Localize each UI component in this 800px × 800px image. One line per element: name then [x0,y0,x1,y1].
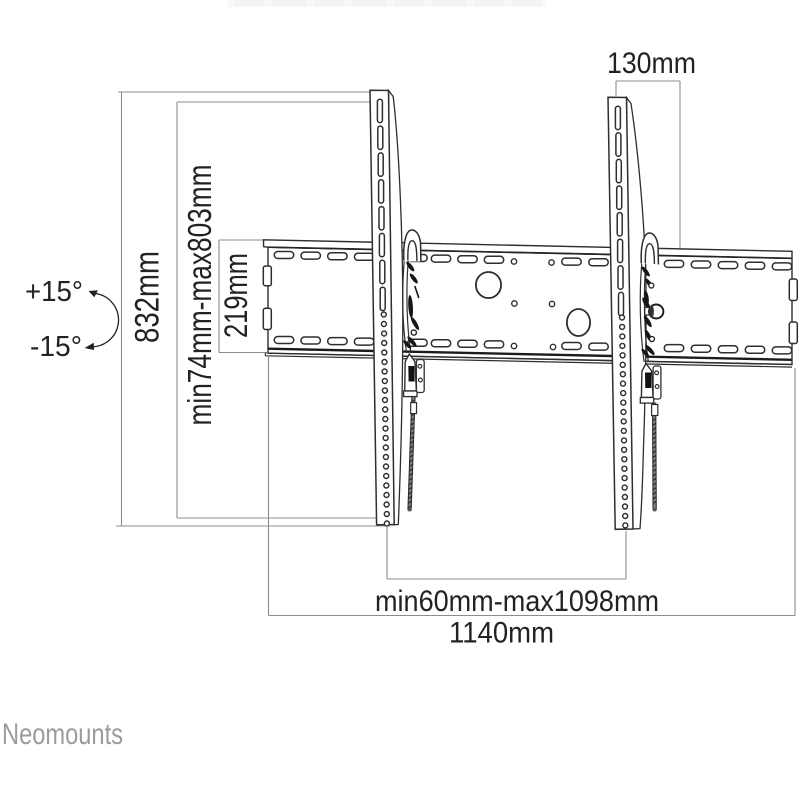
svg-text:+15°: +15° [25,276,83,308]
svg-text:219mm: 219mm [218,253,254,338]
svg-text:832mm: 832mm [129,251,167,343]
svg-text:1140mm: 1140mm [449,617,554,650]
svg-text:Neomounts: Neomounts [2,718,123,751]
svg-text:min74mm-max803mm: min74mm-max803mm [181,165,218,426]
svg-text:min60mm-max1098mm: min60mm-max1098mm [375,585,659,618]
svg-text:130mm: 130mm [607,47,696,80]
svg-text:-15°: -15° [30,331,82,363]
